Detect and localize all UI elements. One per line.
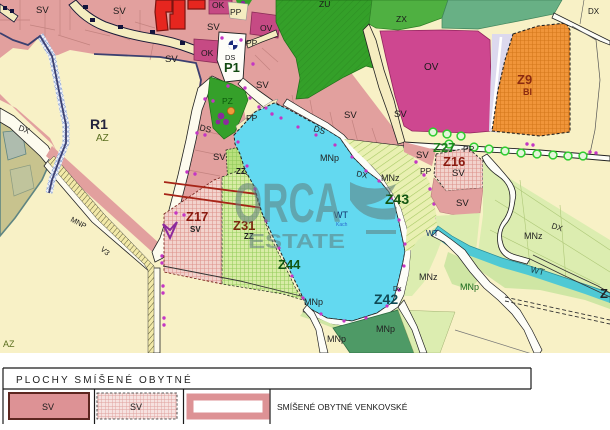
- svg-text:PZ: PZ: [222, 96, 233, 106]
- svg-text:DX: DX: [588, 7, 600, 16]
- svg-text:SV: SV: [42, 402, 54, 412]
- svg-text:SV: SV: [130, 402, 142, 412]
- svg-text:SV: SV: [344, 110, 357, 121]
- svg-text:PP: PP: [230, 7, 242, 17]
- svg-text:ZU: ZU: [319, 0, 330, 9]
- svg-text:MNp: MNp: [320, 153, 339, 163]
- svg-text:ZX: ZX: [396, 14, 407, 24]
- svg-text:MNp: MNp: [327, 334, 346, 344]
- svg-text:Z16: Z16: [443, 154, 465, 169]
- svg-text:SV: SV: [416, 150, 429, 161]
- svg-text:Z44: Z44: [278, 257, 301, 272]
- svg-text:PP: PP: [463, 144, 475, 154]
- svg-text:BI: BI: [523, 87, 532, 97]
- svg-text:OK: OK: [212, 0, 225, 10]
- svg-text:OV: OV: [260, 23, 273, 33]
- svg-text:Z17: Z17: [186, 209, 208, 224]
- svg-text:SV: SV: [256, 80, 269, 91]
- svg-text:MNz: MNz: [381, 173, 400, 183]
- svg-text:MNp: MNp: [304, 297, 323, 307]
- svg-text:Z42: Z42: [374, 291, 398, 307]
- svg-text:ORCA: ORCA: [234, 171, 341, 234]
- svg-text:PP: PP: [246, 38, 258, 48]
- svg-text:SV: SV: [213, 152, 226, 163]
- svg-text:MNz: MNz: [524, 231, 543, 241]
- svg-text:PP: PP: [246, 113, 258, 123]
- svg-text:SV: SV: [190, 225, 201, 234]
- svg-text:OK: OK: [201, 48, 214, 58]
- svg-text:PP: PP: [420, 166, 432, 176]
- svg-text:SV: SV: [456, 198, 469, 209]
- svg-text:SV: SV: [452, 168, 465, 179]
- svg-text:SV: SV: [207, 22, 220, 33]
- svg-text:SMÍŠENÉ OBYTNÉ VENKOVSKÉ: SMÍŠENÉ OBYTNÉ VENKOVSKÉ: [277, 402, 408, 412]
- svg-text:AZ: AZ: [96, 133, 109, 144]
- svg-text:SV: SV: [165, 54, 178, 65]
- svg-text:PLOCHY SMÍŠENÉ OBYTNÉ: PLOCHY SMÍŠENÉ OBYTNÉ: [16, 373, 193, 386]
- svg-text:ESTATE: ESTATE: [248, 230, 345, 253]
- svg-text:Z9: Z9: [517, 72, 532, 87]
- svg-text:Z: Z: [600, 286, 608, 301]
- svg-text:MNp: MNp: [376, 324, 395, 334]
- svg-text:R1: R1: [90, 116, 108, 132]
- svg-text:OV: OV: [424, 62, 439, 73]
- svg-text:AZ: AZ: [3, 339, 15, 349]
- svg-text:P1: P1: [224, 60, 240, 75]
- svg-text:SV: SV: [394, 109, 407, 120]
- svg-text:WT: WT: [426, 229, 439, 238]
- svg-text:Z27: Z27: [433, 140, 455, 155]
- svg-text:MNp: MNp: [460, 282, 479, 292]
- svg-text:SV: SV: [113, 6, 126, 17]
- svg-text:SV: SV: [36, 5, 49, 16]
- svg-text:MNz: MNz: [419, 272, 438, 282]
